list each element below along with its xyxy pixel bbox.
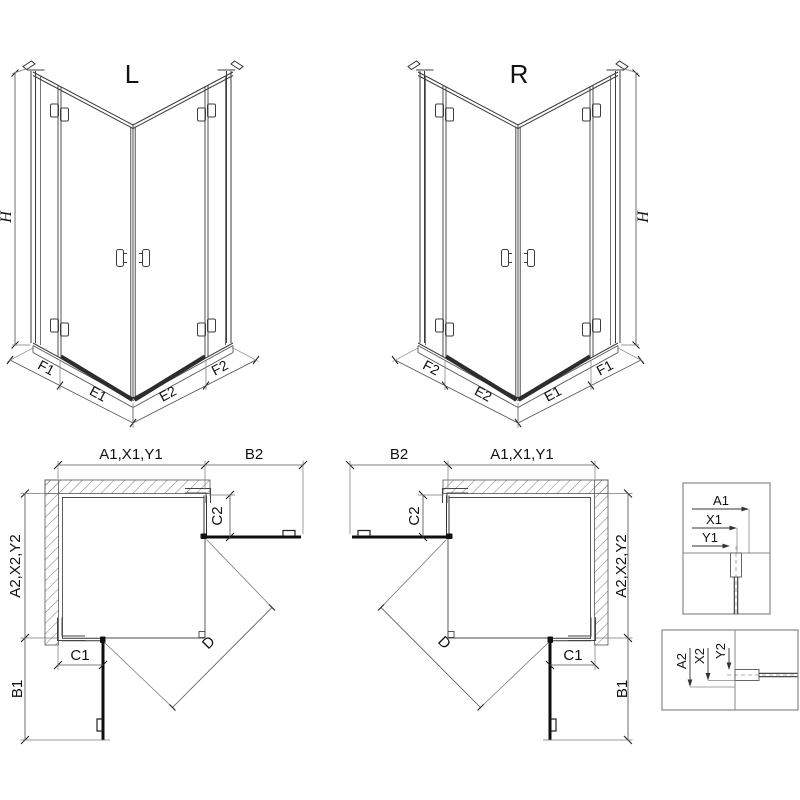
- dim-x1: X1: [706, 512, 722, 527]
- dim-c2: C2: [406, 506, 423, 525]
- dim-f1: F1: [594, 357, 616, 379]
- wall-hatch-top: [443, 480, 608, 494]
- dim-b1: B1: [9, 680, 26, 698]
- dim-f1: F1: [35, 357, 57, 379]
- dim-f2: F2: [209, 357, 231, 379]
- dim-c1: C1: [563, 647, 582, 664]
- shower-enclosure-technical-drawing: L H F1 E1 E2 F2 R H F2 E2 E1 F1 A1,X1,Y1…: [0, 0, 800, 800]
- drawing-canvas: L H F1 E1 E2 F2 R H F2 E2 E1 F1 A1,X1,Y1…: [0, 0, 800, 800]
- dim-y1: Y1: [702, 530, 718, 545]
- dim-c1: C1: [70, 647, 89, 664]
- dim-x2: X2: [692, 648, 707, 664]
- detail-wall-profile-side: A2 X2 Y2: [662, 630, 798, 710]
- dim-a2: A2: [674, 653, 689, 669]
- height-dim-label: H: [0, 210, 15, 224]
- dim-b1: B1: [614, 680, 631, 698]
- dim-d: D: [434, 633, 454, 653]
- dim-a1: A1: [713, 493, 729, 508]
- variant-label-left: L: [125, 59, 139, 89]
- dim-b2: B2: [390, 446, 408, 463]
- dim-a2x2y2: A2,X2,Y2: [613, 534, 630, 597]
- height-dim-label: H: [635, 210, 652, 224]
- plan-view-left: A1,X1,Y1 B2 C2 A2,X2,Y2 B1 C1 D: [7, 446, 307, 744]
- dim-a2x2y2: A2,X2,Y2: [7, 534, 24, 597]
- detail-frame: [662, 630, 798, 710]
- iso-view-left: L H F1 E1 E2 F2: [0, 59, 259, 428]
- dim-f2: F2: [420, 357, 442, 379]
- detail-wall-profile-top: A1 X1 Y1: [683, 483, 770, 614]
- variant-label-right: R: [510, 59, 529, 89]
- plan-view-right: B2 A1,X1,Y1 C2 A2,X2,Y2 B1 C1 D: [346, 446, 633, 744]
- iso-view-right: R H F2 E2 E1 F1: [392, 59, 652, 428]
- dim-d: D: [199, 633, 219, 653]
- dim-b2: B2: [245, 446, 263, 463]
- wall-hatch-side: [45, 480, 59, 645]
- dim-a1x1y1: A1,X1,Y1: [490, 446, 553, 463]
- wall-hatch-side: [595, 480, 609, 645]
- dim-c2: C2: [209, 506, 226, 525]
- dim-y2: Y2: [713, 643, 728, 659]
- wall-hatch-top: [45, 480, 210, 494]
- dim-a1x1y1: A1,X1,Y1: [99, 446, 162, 463]
